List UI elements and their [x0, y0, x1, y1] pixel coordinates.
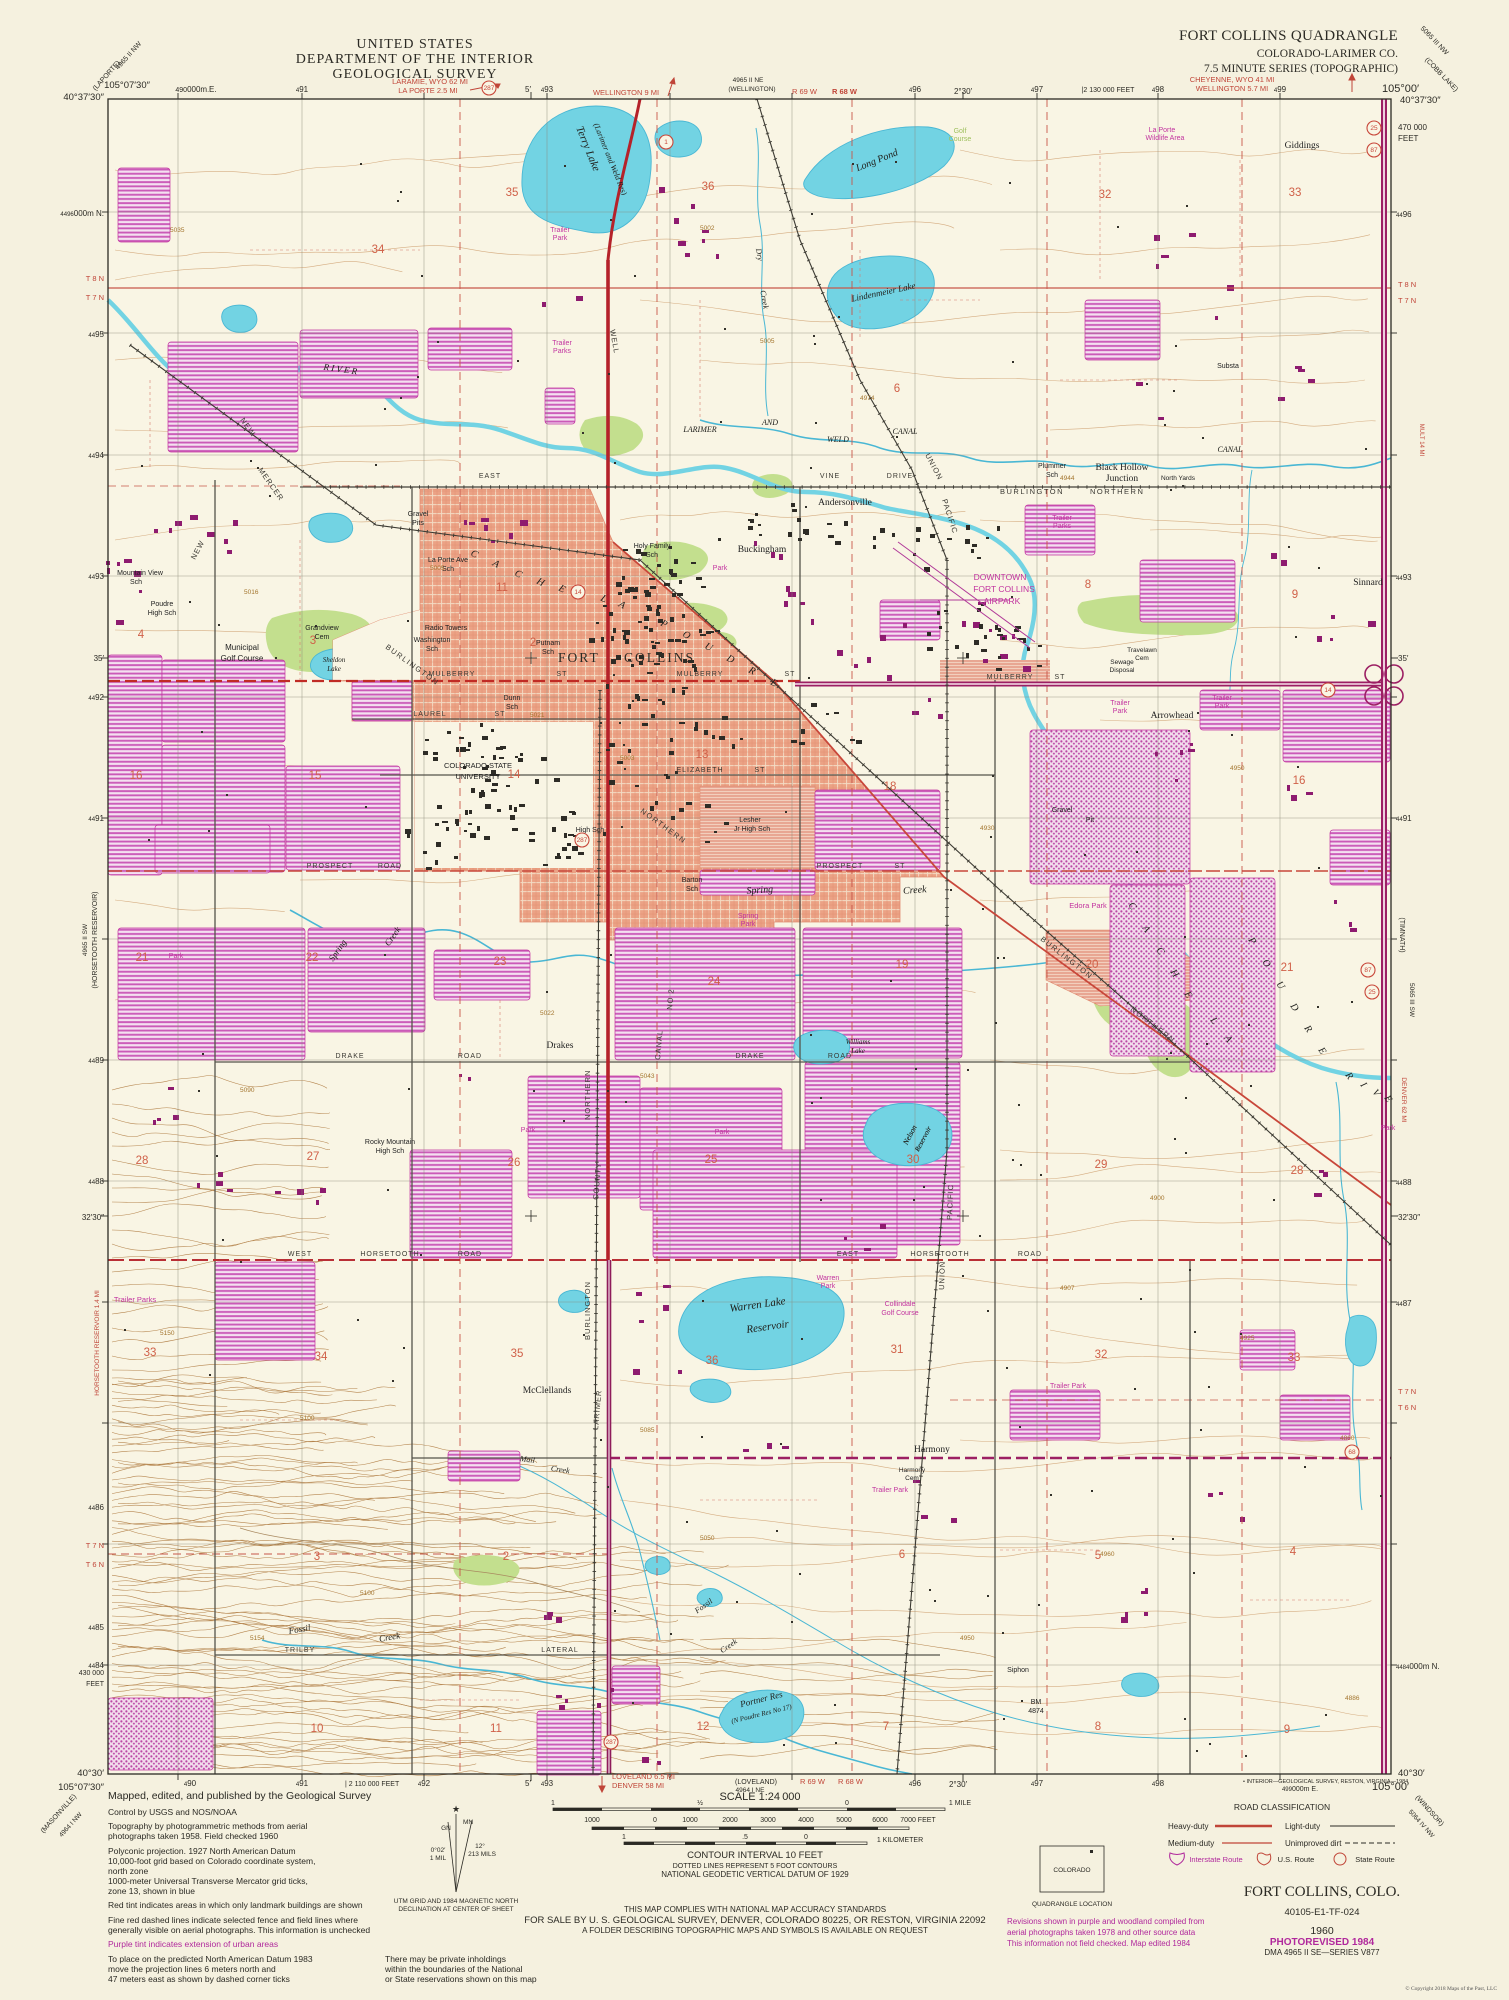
- svg-text:40105-E1-TF-024: 40105-E1-TF-024: [1285, 1907, 1360, 1918]
- svg-text:Golf: Golf: [954, 128, 967, 135]
- svg-text:Purple tint indicates extensio: Purple tint indicates extension of urban…: [108, 1939, 278, 1949]
- svg-text:4492: 4492: [88, 693, 104, 702]
- svg-text:Poudre: Poudre: [151, 601, 174, 608]
- svg-text:VINE: VINE: [820, 473, 840, 480]
- svg-text:Black Hollow: Black Hollow: [1095, 463, 1148, 473]
- svg-text:ROAD: ROAD: [828, 1053, 852, 1060]
- svg-text:10: 10: [311, 1723, 324, 1735]
- svg-text:COLORADO STATE: COLORADO STATE: [444, 761, 512, 770]
- svg-text:21: 21: [136, 952, 149, 964]
- svg-text:ST: ST: [895, 863, 906, 870]
- svg-text:5005: 5005: [760, 338, 775, 345]
- svg-text:BURLINGTON: BURLINGTON: [583, 1281, 592, 1340]
- svg-text:4930: 4930: [980, 825, 995, 832]
- svg-text:25: 25: [1370, 125, 1378, 132]
- svg-text:La Porte: La Porte: [1149, 127, 1176, 134]
- svg-text:14: 14: [574, 589, 582, 596]
- svg-text:generally visible on aerial ph: generally visible on aerial photographs.…: [108, 1925, 370, 1935]
- svg-text:Radio Towers: Radio Towers: [425, 625, 468, 632]
- svg-text:7000 FEET: 7000 FEET: [900, 1817, 936, 1824]
- svg-text:Harmony: Harmony: [914, 1445, 950, 1455]
- svg-text:ROAD: ROAD: [378, 863, 402, 870]
- svg-text:Golf Course: Golf Course: [221, 654, 264, 663]
- svg-text:Park: Park: [713, 565, 728, 572]
- svg-text:Municipal: Municipal: [225, 643, 259, 652]
- svg-text:FORT COLLINS, COLO.: FORT COLLINS, COLO.: [1244, 1884, 1400, 1900]
- svg-text:TRILBY: TRILBY: [285, 1647, 316, 1654]
- svg-text:Unimproved dirt: Unimproved dirt: [1285, 1839, 1342, 1848]
- svg-text:FOR SALE BY U. S. GEOLOGIC: FOR SALE BY U. S. GEOLOGICAL SURVEY, DEN…: [524, 1915, 985, 1926]
- svg-text:Harmony: Harmony: [899, 1467, 926, 1474]
- svg-text:5003: 5003: [620, 755, 635, 762]
- svg-text:5065 III NW: 5065 III NW: [1419, 25, 1450, 57]
- svg-text:24: 24: [708, 976, 721, 988]
- svg-text:0: 0: [653, 1817, 657, 1824]
- svg-text:492: 492: [418, 1779, 431, 1788]
- svg-text:4484: 4484: [88, 1661, 104, 1670]
- svg-text:ST: ST: [557, 671, 568, 678]
- svg-text:Edora Park: Edora Park: [1069, 901, 1107, 910]
- svg-text:87: 87: [1364, 967, 1372, 974]
- svg-text:HORSETOOTH: HORSETOOTH: [910, 1251, 969, 1258]
- svg-text:493: 493: [541, 85, 554, 94]
- svg-text:4900: 4900: [1150, 1195, 1165, 1202]
- svg-text:DMA 4965 II SE—SERIES V877: DMA 4965 II SE—SERIES V877: [1264, 1948, 1380, 1957]
- svg-text:Drakes: Drakes: [547, 1041, 574, 1051]
- svg-text:5021: 5021: [530, 712, 545, 719]
- svg-text:Travelawn: Travelawn: [1127, 647, 1157, 654]
- svg-text:35′: 35′: [94, 654, 105, 663]
- svg-text:DOTTED LINES REPRESENT 5 FOOT: DOTTED LINES REPRESENT 5 FOOT CONTOURS: [673, 1863, 838, 1870]
- svg-text:DOWNTOWN: DOWNTOWN: [974, 572, 1027, 582]
- svg-text:4488: 4488: [88, 1177, 104, 1186]
- svg-text:Lesher: Lesher: [739, 817, 761, 824]
- svg-text:Lake: Lake: [850, 1047, 865, 1055]
- svg-text:ROAD: ROAD: [458, 1251, 482, 1258]
- svg-text:287: 287: [606, 1739, 617, 1746]
- svg-text:R 69 W: R 69 W: [800, 1777, 826, 1786]
- svg-text:Creek: Creek: [903, 884, 928, 897]
- svg-text:14: 14: [1324, 687, 1332, 694]
- svg-text:Collindale: Collindale: [885, 1301, 916, 1308]
- svg-text:DRIVE: DRIVE: [887, 473, 913, 480]
- svg-text:DENVER 58 MI: DENVER 58 MI: [612, 1781, 664, 1790]
- svg-text:4495: 4495: [88, 330, 104, 339]
- svg-text:WEST: WEST: [288, 1251, 312, 1258]
- svg-text:30: 30: [907, 1154, 920, 1166]
- svg-text:5150: 5150: [160, 1330, 175, 1337]
- svg-text:1000: 1000: [682, 1817, 698, 1824]
- svg-text:Park: Park: [741, 921, 756, 928]
- svg-text:27: 27: [307, 1151, 320, 1163]
- svg-text:DRAKE: DRAKE: [735, 1053, 764, 1060]
- svg-text:T 7 N: T 7 N: [86, 293, 104, 302]
- svg-text:5005: 5005: [430, 565, 445, 572]
- svg-text:(WELLINGTON): (WELLINGTON): [728, 86, 775, 93]
- svg-text:Sch: Sch: [542, 649, 554, 656]
- svg-text:(HORSETOOTH RESERVOIR): (HORSETOOTH RESERVOIR): [92, 892, 99, 989]
- svg-text:ST: ST: [755, 767, 766, 774]
- svg-text:R 68 W: R 68 W: [832, 87, 858, 96]
- svg-text:4493: 4493: [88, 572, 104, 581]
- svg-text:GN: GN: [441, 1825, 451, 1832]
- svg-text:4950: 4950: [960, 1635, 975, 1642]
- svg-text:T 8 N: T 8 N: [86, 274, 104, 283]
- svg-text:PROSPECT: PROSPECT: [307, 863, 354, 870]
- svg-text:Sch: Sch: [426, 646, 438, 653]
- svg-text:11: 11: [496, 582, 508, 594]
- svg-text:CONTOUR INTERVAL 10 FEET: CONTOUR INTERVAL 10 FEET: [687, 1850, 823, 1861]
- svg-text:287: 287: [577, 837, 588, 844]
- svg-text:ST: ST: [495, 711, 506, 718]
- svg-text:4491: 4491: [88, 814, 104, 823]
- svg-text:21: 21: [1281, 962, 1294, 974]
- svg-text:Putnam: Putnam: [536, 640, 560, 647]
- svg-text:25: 25: [1368, 989, 1376, 996]
- svg-text:|2 130 000 FEET: |2 130 000 FEET: [1082, 87, 1136, 94]
- svg-text:1000-meter Universal Transvers: 1000-meter Universal Transverse Mercator…: [108, 1876, 308, 1886]
- svg-text:Heavy-duty: Heavy-duty: [1168, 1822, 1208, 1831]
- svg-text:498: 498: [1152, 85, 1165, 94]
- svg-text:4496000m N.: 4496000m N.: [60, 209, 104, 218]
- svg-text:5100: 5100: [360, 1590, 375, 1597]
- svg-text:★: ★: [452, 1804, 460, 1814]
- svg-text:0: 0: [845, 1800, 849, 1807]
- svg-text:Parks: Parks: [1053, 523, 1071, 530]
- svg-text:Plummer: Plummer: [1038, 463, 1067, 470]
- svg-text:36: 36: [706, 1355, 719, 1367]
- svg-text:15: 15: [309, 770, 322, 782]
- svg-text:Light-duty: Light-duty: [1285, 1822, 1320, 1831]
- svg-text:To place on the predicted Nort: To place on the predicted North American…: [108, 1954, 313, 1964]
- svg-text:NORTHERN: NORTHERN: [583, 1070, 592, 1120]
- svg-text:PHOTOREVISED 1984: PHOTOREVISED 1984: [1270, 1937, 1375, 1948]
- svg-text:4496: 4496: [1396, 210, 1412, 219]
- svg-text:move the projection lines 6 me: move the projection lines 6 meters north…: [108, 1964, 276, 1974]
- svg-text:Warren: Warren: [817, 1275, 840, 1282]
- svg-text:4874: 4874: [1028, 1708, 1044, 1715]
- svg-text:Gravel: Gravel: [408, 511, 429, 518]
- svg-text:EAST: EAST: [479, 473, 501, 480]
- svg-text:13: 13: [696, 749, 709, 761]
- svg-text:A FOLDER DESCRIBING TOPOGRA: A FOLDER DESCRIBING TOPOGRAPHIC MAPS AND…: [582, 1926, 928, 1935]
- svg-text:Trailer: Trailer: [1052, 515, 1072, 522]
- svg-text:5043: 5043: [640, 1073, 655, 1080]
- svg-text:23: 23: [494, 956, 507, 968]
- svg-text:430 000: 430 000: [79, 1670, 104, 1677]
- svg-text:4484000m N.: 4484000m N.: [1396, 1662, 1440, 1671]
- svg-text:491: 491: [296, 1779, 309, 1788]
- svg-text:Cem: Cem: [905, 1475, 919, 1482]
- svg-text:28: 28: [136, 1155, 149, 1167]
- svg-text:DECLINATION AT CENTER OF SHEET: DECLINATION AT CENTER OF SHEET: [398, 1906, 513, 1913]
- svg-text:Siphon: Siphon: [1007, 1667, 1029, 1674]
- svg-text:1 MIL: 1 MIL: [430, 1855, 447, 1862]
- svg-text:LA PORTE 2.5 MI: LA PORTE 2.5 MI: [398, 86, 457, 95]
- svg-text:Red tint indicates areas in wh: Red tint indicates areas in which only l…: [108, 1900, 363, 1910]
- svg-text:6: 6: [899, 1549, 905, 1561]
- svg-text:470 000: 470 000: [1398, 123, 1427, 132]
- svg-text:Trailer: Trailer: [1212, 695, 1232, 702]
- svg-text:4488: 4488: [1396, 1178, 1412, 1187]
- svg-text:16: 16: [130, 770, 143, 782]
- svg-text:497: 497: [1031, 1779, 1044, 1788]
- svg-text:8: 8: [1085, 579, 1091, 591]
- svg-text:High Sch: High Sch: [376, 1148, 405, 1155]
- svg-text:ELIZABETH: ELIZABETH: [676, 767, 723, 774]
- svg-text:4487: 4487: [1396, 1299, 1412, 1308]
- svg-text:4000: 4000: [798, 1817, 814, 1824]
- svg-text:PROSPECT: PROSPECT: [817, 863, 864, 870]
- svg-text:There may be private inholding: There may be private inholdings: [385, 1954, 506, 1964]
- svg-text:4944: 4944: [1060, 475, 1075, 482]
- svg-text:6000: 6000: [872, 1817, 888, 1824]
- svg-text:SCALE 1:24 000: SCALE 1:24 000: [719, 1791, 800, 1803]
- svg-text:LARAMIE, WYO 62 MI: LARAMIE, WYO 62 MI: [392, 77, 468, 86]
- svg-text:3000: 3000: [760, 1817, 776, 1824]
- svg-text:499: 499: [1274, 85, 1287, 94]
- svg-text:5′: 5′: [525, 85, 531, 94]
- svg-text:1: 1: [622, 1834, 626, 1841]
- svg-text:HORSETOOTH RESERVOIR 1.4 MI: HORSETOOTH RESERVOIR 1.4 MI: [94, 1290, 101, 1396]
- svg-text:4960: 4960: [1100, 1551, 1115, 1558]
- svg-text:4489: 4489: [88, 1056, 104, 1065]
- svg-text:105°07′30″: 105°07′30″: [104, 80, 151, 91]
- svg-text:491: 491: [296, 85, 309, 94]
- svg-text:Park: Park: [521, 1127, 536, 1134]
- svg-text:490000m.E.: 490000m.E.: [175, 85, 216, 94]
- svg-text:3: 3: [314, 1551, 320, 1563]
- svg-text:19: 19: [896, 959, 909, 971]
- svg-text:40°37′30″: 40°37′30″: [63, 92, 104, 103]
- svg-text:Park: Park: [1381, 1125, 1396, 1132]
- svg-text:Buckingham: Buckingham: [738, 545, 787, 555]
- svg-text:FORT: FORT: [558, 650, 600, 665]
- svg-text:DENVER 62 MI: DENVER 62 MI: [1400, 1077, 1407, 1122]
- svg-text:Grandview: Grandview: [305, 625, 339, 632]
- svg-text:4974: 4974: [860, 395, 875, 402]
- svg-text:4886: 4886: [1345, 1695, 1360, 1702]
- svg-text:T 7 N: T 7 N: [1398, 296, 1416, 305]
- svg-text:BM: BM: [1031, 1699, 1042, 1706]
- svg-text:5090: 5090: [240, 1087, 255, 1094]
- svg-text:T 8 N: T 8 N: [1398, 280, 1416, 289]
- svg-text:4: 4: [138, 629, 145, 641]
- svg-text:1000: 1000: [584, 1817, 600, 1824]
- svg-text:213 MILS: 213 MILS: [468, 1851, 496, 1858]
- svg-text:Spring: Spring: [738, 913, 758, 920]
- svg-text:Williams: Williams: [846, 1038, 871, 1046]
- svg-text:COLORADO-LARIMER CO.: COLORADO-LARIMER CO.: [1257, 48, 1398, 60]
- svg-text:493: 493: [541, 1779, 554, 1788]
- svg-text:4491: 4491: [1396, 814, 1412, 823]
- svg-text:MULT 14 MI: MULT 14 MI: [1418, 424, 1424, 457]
- svg-text:Revisions shown in purple and: Revisions shown in purple and woodland c…: [1007, 1917, 1205, 1926]
- svg-text:32′30″: 32′30″: [1398, 1213, 1420, 1222]
- svg-text:32: 32: [1095, 1349, 1108, 1361]
- svg-text:4486: 4486: [88, 1503, 104, 1512]
- svg-text:FORT COLLINS: FORT COLLINS: [973, 584, 1035, 594]
- svg-text:Barton: Barton: [682, 877, 703, 884]
- svg-text:CHEYENNE, WYO 41 MI: CHEYENNE, WYO 41 MI: [1190, 75, 1275, 84]
- svg-text:DRAKE: DRAKE: [335, 1053, 364, 1060]
- svg-text:18: 18: [884, 781, 897, 793]
- svg-text:40°30′: 40°30′: [1398, 1768, 1425, 1779]
- svg-text:1: 1: [551, 1800, 555, 1807]
- svg-text:12°: 12°: [475, 1842, 485, 1850]
- svg-text:25: 25: [705, 1154, 718, 1166]
- svg-text:Park: Park: [821, 1283, 836, 1290]
- svg-text:Sheldon: Sheldon: [323, 656, 346, 664]
- svg-text:1960: 1960: [1310, 1925, 1334, 1937]
- svg-text:MULBERRY: MULBERRY: [987, 674, 1034, 681]
- svg-text:North Yards: North Yards: [1161, 475, 1196, 482]
- svg-text:CANAL: CANAL: [1218, 445, 1243, 454]
- svg-text:287: 287: [484, 85, 495, 92]
- svg-text:FORT COLLINS QUADRANGLE: FORT COLLINS QUADRANGLE: [1179, 28, 1398, 44]
- svg-text:Trailer Park: Trailer Park: [1050, 1383, 1086, 1390]
- svg-text:R 69 W: R 69 W: [792, 87, 818, 96]
- svg-text:5000: 5000: [836, 1817, 852, 1824]
- svg-text:• INTERIOR—GEOLOGICAL SURVEY,: • INTERIOR—GEOLOGICAL SURVEY, RESTON, VI…: [1243, 1779, 1408, 1785]
- svg-text:COLLINS: COLLINS: [624, 650, 695, 665]
- svg-text:LAUREL: LAUREL: [413, 711, 446, 718]
- svg-text:5002: 5002: [700, 225, 715, 232]
- svg-text:496: 496: [909, 85, 922, 94]
- svg-text:ST: ST: [1055, 674, 1066, 681]
- svg-text:4485: 4485: [88, 1623, 104, 1632]
- svg-text:2000: 2000: [722, 1817, 738, 1824]
- svg-text:T 6 N: T 6 N: [86, 1560, 104, 1569]
- svg-text:1 KILOMETER: 1 KILOMETER: [877, 1837, 923, 1844]
- svg-text:28: 28: [1291, 1165, 1304, 1177]
- svg-text:5016: 5016: [244, 589, 259, 596]
- svg-text:ST: ST: [785, 671, 796, 678]
- svg-text:32′30″: 32′30″: [82, 1213, 104, 1222]
- svg-text:36: 36: [702, 181, 715, 193]
- svg-text:UNION: UNION: [937, 1261, 947, 1290]
- svg-text:4860: 4860: [1340, 1435, 1355, 1442]
- svg-text:7: 7: [883, 1721, 889, 1733]
- svg-text:| 2 110 000 FEET: | 2 110 000 FEET: [345, 1781, 400, 1788]
- svg-text:87: 87: [1370, 147, 1378, 154]
- svg-text:Junction: Junction: [1106, 474, 1138, 484]
- svg-text:0°02′: 0°02′: [431, 1846, 446, 1854]
- svg-text:35: 35: [506, 187, 519, 199]
- svg-text:Spring: Spring: [746, 884, 773, 897]
- svg-text:5022: 5022: [540, 1010, 555, 1017]
- svg-text:11: 11: [490, 1723, 502, 1735]
- svg-text:Park: Park: [1113, 708, 1128, 715]
- svg-text:40°37′30″: 40°37′30″: [1400, 95, 1441, 106]
- svg-text:Arrowhead: Arrowhead: [1151, 711, 1194, 721]
- svg-text:Holy Family: Holy Family: [634, 543, 671, 550]
- svg-text:34: 34: [315, 1351, 328, 1363]
- svg-text:105°07′30″: 105°07′30″: [58, 1782, 105, 1793]
- svg-text:within the boundaries of the N: within the boundaries of the National: [384, 1964, 523, 1974]
- svg-text:4965 II NE: 4965 II NE: [733, 77, 764, 84]
- svg-text:COLORADO: COLORADO: [1053, 1867, 1090, 1874]
- svg-text:north zone: north zone: [108, 1866, 148, 1876]
- svg-text:Gravel: Gravel: [1052, 807, 1073, 814]
- svg-text:T 7 N: T 7 N: [86, 1541, 104, 1550]
- svg-text:6: 6: [894, 383, 900, 395]
- svg-text:Cem: Cem: [315, 634, 330, 641]
- svg-text:Sewage: Sewage: [1110, 659, 1134, 666]
- svg-text:ROAD: ROAD: [1018, 1251, 1042, 1258]
- svg-text:5035: 5035: [170, 227, 185, 234]
- svg-text:4950: 4950: [1230, 765, 1245, 772]
- svg-text:Jr High Sch: Jr High Sch: [734, 826, 770, 833]
- svg-text:105°00′: 105°00′: [1382, 83, 1419, 95]
- svg-text:0: 0: [804, 1834, 808, 1841]
- svg-text:2: 2: [503, 1551, 509, 1563]
- svg-text:CANAL: CANAL: [893, 427, 918, 436]
- svg-text:Washington: Washington: [414, 637, 451, 644]
- svg-text:Sch: Sch: [130, 579, 142, 586]
- svg-text:Trailer: Trailer: [1110, 700, 1130, 707]
- svg-text:Trailer Parks: Trailer Parks: [114, 1295, 156, 1304]
- svg-text:Pit: Pit: [1086, 817, 1094, 824]
- svg-text:8: 8: [1095, 1721, 1101, 1733]
- svg-text:2°30′: 2°30′: [954, 87, 973, 96]
- svg-text:LARIMER: LARIMER: [682, 425, 716, 434]
- svg-text:498: 498: [1152, 1779, 1165, 1788]
- svg-text:22: 22: [306, 952, 319, 964]
- svg-text:McClellands: McClellands: [523, 1386, 572, 1396]
- svg-text:47 meters east as shown by das: 47 meters east as shown by dashed corner…: [108, 1974, 290, 1984]
- svg-text:WELLINGTON 5.7 MI: WELLINGTON 5.7 MI: [1196, 84, 1268, 93]
- svg-text:Andersonville: Andersonville: [818, 498, 872, 508]
- svg-text:Trailer: Trailer: [550, 227, 570, 234]
- svg-text:QUADRANGLE LOCATION: QUADRANGLE LOCATION: [1032, 1901, 1112, 1908]
- svg-text:4907: 4907: [1060, 1285, 1075, 1292]
- svg-text:This information not field che: This information not field checked. Map …: [1007, 1939, 1191, 1948]
- svg-text:FEET: FEET: [86, 1681, 105, 1688]
- svg-text:4: 4: [1290, 1546, 1297, 1558]
- svg-text:Topography by photogrammetric: Topography by photogrammetric methods fr…: [108, 1821, 307, 1831]
- svg-text:U.S. Route: U.S. Route: [1278, 1855, 1315, 1864]
- svg-text:5100: 5100: [300, 1415, 315, 1422]
- svg-text:499000m E.: 499000m E.: [1282, 1786, 1318, 1793]
- svg-text:LATERAL: LATERAL: [541, 1647, 579, 1654]
- svg-text:1 MILE: 1 MILE: [949, 1800, 972, 1807]
- svg-text:Sch: Sch: [506, 704, 518, 711]
- svg-text:.5: .5: [742, 1834, 748, 1841]
- svg-text:LOVELAND 6.5 MI: LOVELAND 6.5 MI: [612, 1772, 675, 1781]
- svg-text:33: 33: [144, 1347, 157, 1359]
- svg-text:UTM GRID AND 1984 MAGNETIC NOR: UTM GRID AND 1984 MAGNETIC NORTH: [394, 1898, 519, 1905]
- svg-text:aerial photographs taken 1978: aerial photographs taken 1978 and other …: [1007, 1928, 1196, 1937]
- svg-text:ROAD: ROAD: [458, 1053, 482, 1060]
- svg-text:UNIVERSITY: UNIVERSITY: [455, 772, 500, 781]
- svg-text:BURLINGTON: BURLINGTON: [1000, 487, 1064, 496]
- svg-text:Control by USGS and NOS/NOAA: Control by USGS and NOS/NOAA: [108, 1807, 237, 1817]
- svg-text:photographs taken 1958. Field: photographs taken 1958. Field checked 19…: [108, 1831, 278, 1841]
- svg-text:R 68 W: R 68 W: [838, 1777, 864, 1786]
- svg-text:Interstate Route: Interstate Route: [1189, 1855, 1242, 1864]
- svg-text:4493: 4493: [1396, 573, 1412, 582]
- svg-text:26: 26: [508, 1157, 521, 1169]
- svg-text:9: 9: [1292, 589, 1298, 601]
- svg-text:10,000-foot grid based on Colo: 10,000-foot grid based on Colorado coord…: [108, 1856, 315, 1866]
- svg-text:4965 II SW: 4965 II SW: [82, 923, 89, 956]
- svg-text:zone 13, shown in blue: zone 13, shown in blue: [108, 1886, 195, 1896]
- svg-text:2°30′: 2°30′: [949, 1780, 968, 1789]
- svg-text:Park: Park: [553, 235, 568, 242]
- svg-text:Rocky Mountain: Rocky Mountain: [365, 1139, 415, 1146]
- svg-text:EAST: EAST: [837, 1251, 859, 1258]
